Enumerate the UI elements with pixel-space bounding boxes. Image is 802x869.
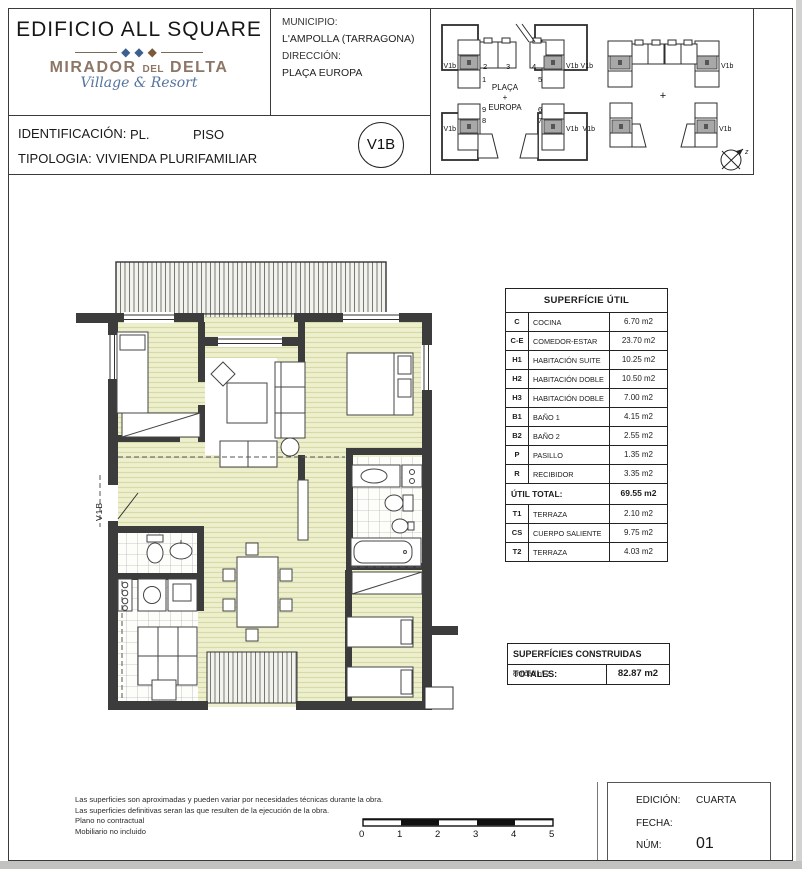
scale-tick: 0 (359, 829, 364, 840)
row-code: H3 (506, 389, 529, 407)
table-total-row: ÚTIL TOTAL:69.55 m2 (506, 484, 667, 505)
entity-label: entidad nº 2 (508, 671, 606, 678)
block-number: 5 (538, 75, 542, 84)
v1b-label: V1b (581, 63, 594, 70)
plaza-line1: PLAÇA (492, 83, 519, 92)
v1b-label: V1b (566, 126, 579, 133)
row-area: 7.00 m2 (609, 389, 667, 407)
scan-edge (0, 861, 802, 869)
logo: ◆ ◆ ◆ MIRADOR DEL DELTA Village & Resort (8, 46, 270, 91)
row-area: 1.35 m2 (609, 446, 667, 464)
unit-type-badge: V1B (358, 122, 404, 168)
scale-tick: 5 (549, 829, 554, 840)
row-name: PASILLO (529, 451, 609, 460)
v1b-label: V1b (566, 63, 579, 70)
fecha-label: FECHA: (636, 818, 673, 829)
scale-tick: 2 (435, 829, 440, 840)
built-table-title: SUPERFÍCIES CONSTRUIDAS TOTALES: (508, 644, 669, 665)
row-code: T1 (506, 505, 529, 523)
num-label: NÚM: (636, 840, 662, 851)
floor-plan: V1B (60, 235, 480, 735)
coffee-table (227, 383, 267, 423)
edicion-value: CUARTA (696, 795, 736, 806)
v1b-label: V1b (719, 126, 732, 133)
scale-labels: 0 1 2 3 4 5 (362, 829, 554, 841)
table-row: PPASILLO1.35 m2 (506, 446, 667, 465)
table-row: H2HABITACIÓN DOBLE10.50 m2 (506, 370, 667, 389)
surface-table-title: SUPERFÍCIE ÚTIL (506, 289, 667, 313)
block-number: 8 (482, 116, 486, 125)
logo-diamond-icon: ◆ (148, 46, 157, 58)
table-row: T2TERRAZA4.03 m2 (506, 543, 667, 561)
logo-tagline: Village & Resort (8, 75, 270, 91)
row-area: 9.75 m2 (609, 524, 667, 542)
row-name: BAÑO 1 (529, 413, 609, 422)
site-plaza-text: PLAÇA + EUROPA + (488, 83, 666, 112)
dining-table (237, 557, 278, 627)
scale-bar (362, 818, 554, 827)
row-code: P (506, 446, 529, 464)
row-area: 4.15 m2 (609, 408, 667, 426)
table-row: H3HABITACIÓN DOBLE7.00 m2 (506, 389, 667, 408)
logo-diamond-row: ◆ ◆ ◆ (8, 46, 270, 58)
row-area: 3.35 m2 (609, 465, 667, 483)
table-row: B2BAÑO 22.55 m2 (506, 427, 667, 446)
row-name: COMEDOR-ESTAR (529, 337, 609, 346)
table-row: C-ECOMEDOR-ESTAR23.70 m2 (506, 332, 667, 351)
built-surfaces-table: SUPERFÍCIES CONSTRUIDAS TOTALES: entidad… (507, 643, 670, 685)
table-row: H1HABITACIÓN SUITE10.25 m2 (506, 351, 667, 370)
plan-sheet: EDIFICIO ALL SQUARE ◆ ◆ ◆ MIRADOR DEL DE… (0, 0, 802, 869)
entity-value: 82.87 m2 (606, 665, 669, 684)
municipio-label: MUNICIPIO: (282, 17, 338, 28)
side-table (281, 438, 299, 456)
row-name: HABITACIÓN DOBLE (529, 375, 609, 384)
plaza-line3: EUROPA (488, 103, 522, 112)
row-code: C-E (506, 332, 529, 350)
logo-word: DEL (142, 64, 164, 75)
logo-rule-right (161, 52, 203, 53)
scan-edge (796, 0, 802, 869)
logo-rule-left (75, 52, 117, 53)
divider (753, 8, 754, 175)
bidet-b1 (392, 519, 408, 533)
divider (8, 174, 754, 175)
row-name: BAÑO 2 (529, 432, 609, 441)
note-line: Las superficies son aproximadas y pueden… (75, 795, 495, 806)
row-name: HABITACIÓN DOBLE (529, 394, 609, 403)
edition-box: EDICIÓN: CUARTA FECHA: NÚM: 01 (607, 782, 771, 860)
v1b-label: V1b (444, 126, 457, 133)
block-number: 7 (538, 116, 542, 125)
direccion-value: PLAÇA EUROPA (282, 67, 362, 79)
north-label: z (744, 149, 749, 156)
tipologia-value: VIVIENDA PLURIFAMILIAR (96, 151, 257, 166)
plaza-line2: + (503, 93, 508, 102)
tipologia-label: TIPOLOGIA: (18, 151, 92, 166)
terrace-t2 (207, 652, 297, 703)
scale-tick: 4 (511, 829, 516, 840)
note-line: Las superficies definitivas seran las qu… (75, 806, 495, 817)
row-area: 4.03 m2 (609, 543, 667, 561)
divider (8, 115, 431, 116)
row-name: COCINA (529, 318, 609, 327)
identificacion-piso: PISO (193, 127, 224, 142)
site-block-numbers: 1 2 3 4 5 6 7 8 9 (482, 62, 542, 125)
table-row: T1TERRAZA2.10 m2 (506, 505, 667, 524)
row-code: R (506, 465, 529, 483)
toilet-b1 (385, 495, 403, 511)
block-number: 6 (538, 105, 542, 114)
row-code: C (506, 313, 529, 331)
identificacion-pl: PL. (130, 127, 150, 142)
row-area: 2.10 m2 (609, 505, 667, 523)
row-name: CUERPO SALIENTE (529, 529, 609, 538)
table-row: RRECIBIDOR3.35 m2 (506, 465, 667, 484)
toilet-tank (403, 495, 413, 511)
identificacion-label: IDENTIFICACIÓN: (18, 126, 126, 141)
scale-tick: 3 (473, 829, 478, 840)
v1b-label: V1b (444, 63, 457, 70)
divider (597, 782, 598, 860)
sideboard (298, 480, 308, 540)
block-number: 9 (482, 105, 486, 114)
building-title: EDIFICIO ALL SQUARE (8, 18, 270, 42)
toilet-b2-tank (147, 535, 163, 542)
table-row: CSCUERPO SALIENTE9.75 m2 (506, 524, 667, 543)
sink-b2 (170, 543, 192, 559)
row-name: TERRAZA (529, 548, 609, 557)
row-code: H1 (506, 351, 529, 369)
row-area: 10.25 m2 (609, 351, 667, 369)
row-area: 6.70 m2 (609, 313, 667, 331)
direccion-label: DIRECCIÓN: (282, 51, 341, 62)
floor-plan-unit-label: V1B (94, 502, 104, 521)
site-key-plan: V1b V1b V1b V1b V1b V1b V1b V1b 1 2 3 4 … (430, 8, 753, 174)
toilet-b2 (147, 543, 163, 563)
row-area: 2.55 m2 (609, 427, 667, 445)
block-number: 3 (506, 62, 510, 71)
row-code: B2 (506, 427, 529, 445)
kitchen-appliance (152, 680, 176, 700)
table-row: CCOCINA6.70 m2 (506, 313, 667, 332)
row-name: TERRAZA (529, 510, 609, 519)
logo-diamond-icon: ◆ (134, 46, 143, 58)
v1b-label: V1b (583, 126, 596, 133)
logo-word: DELTA (170, 59, 228, 76)
sofa (275, 362, 305, 438)
north-arrow-icon: z (721, 149, 749, 170)
row-name: RECIBIDOR (529, 470, 609, 479)
edicion-label: EDICIÓN: (636, 795, 680, 806)
row-area: 23.70 m2 (609, 332, 667, 350)
v1b-label: V1b (721, 63, 734, 70)
logo-diamond-icon: ◆ (121, 46, 130, 58)
block-number: 1 (482, 75, 486, 84)
surface-table: SUPERFÍCIE ÚTIL CCOCINA6.70 m2 C-ECOMEDO… (505, 288, 668, 562)
block-number: 4 (532, 62, 536, 71)
num-value: 01 (696, 835, 714, 853)
row-code: H2 (506, 370, 529, 388)
site-unit-labels: V1b V1b V1b V1b V1b V1b V1b V1b (444, 63, 734, 133)
row-code: B1 (506, 408, 529, 426)
total-value: 69.55 m2 (609, 484, 667, 504)
plus-mark: + (660, 90, 666, 102)
scale-tick: 1 (397, 829, 402, 840)
total-label: ÚTIL TOTAL: (506, 489, 609, 499)
block-number: 2 (483, 62, 487, 71)
row-code: T2 (506, 543, 529, 561)
row-name: HABITACIÓN SUITE (529, 356, 609, 365)
logo-word: MIRADOR (50, 59, 137, 76)
table-row: B1BAÑO 14.15 m2 (506, 408, 667, 427)
row-code: CS (506, 524, 529, 542)
municipio-value: L'AMPOLLA (TARRAGONA) (282, 33, 415, 45)
divider (270, 8, 271, 116)
row-area: 10.50 m2 (609, 370, 667, 388)
